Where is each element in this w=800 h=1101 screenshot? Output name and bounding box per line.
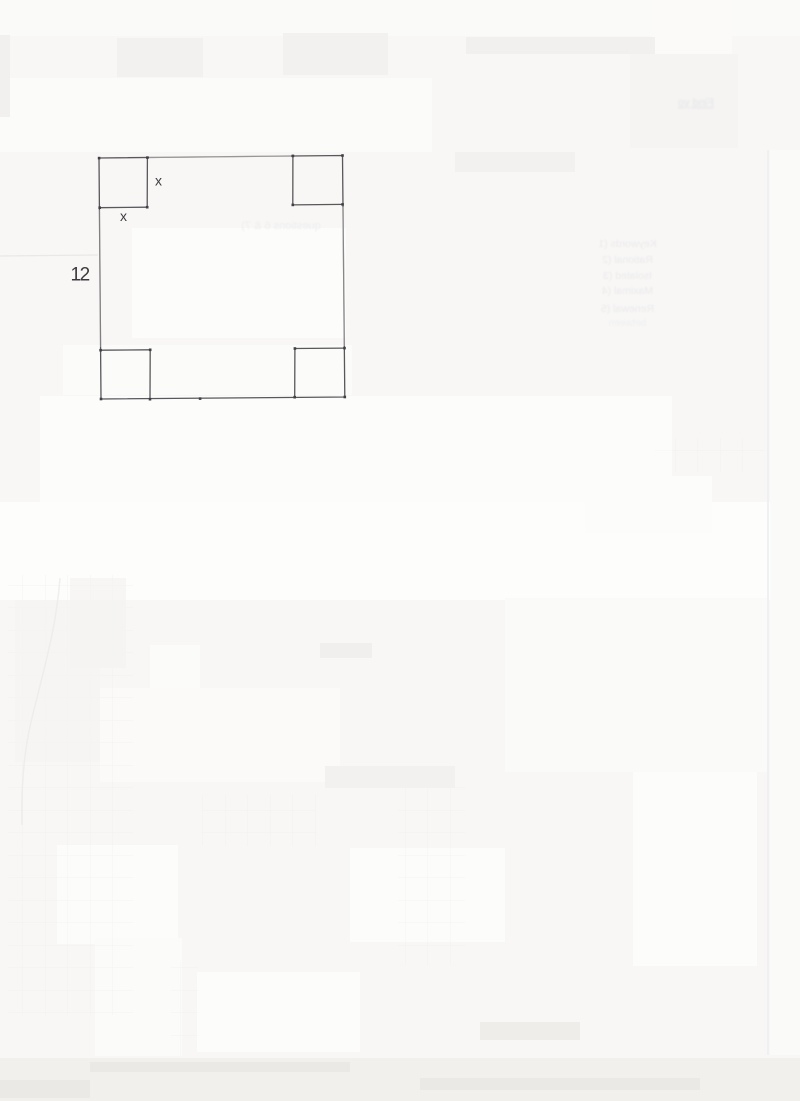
svg-text:Maximal (4: Maximal (4 [602,285,654,297]
svg-text:Find yo: Find yo [678,97,714,109]
svg-text:between: between [609,318,647,329]
svg-text:Renewal (5: Renewal (5 [601,303,654,315]
svg-text:12: 12 [71,265,90,286]
svg-text:x: x [155,173,162,189]
svg-text:questions 6 & 7): questions 6 & 7) [241,220,321,232]
svg-text:x: x [120,208,127,224]
svg-text:Isolated (3: Isolated (3 [603,270,652,282]
svg-text:Keywords (1: Keywords (1 [598,238,657,250]
svg-text:Rational (2: Rational (2 [602,254,653,266]
